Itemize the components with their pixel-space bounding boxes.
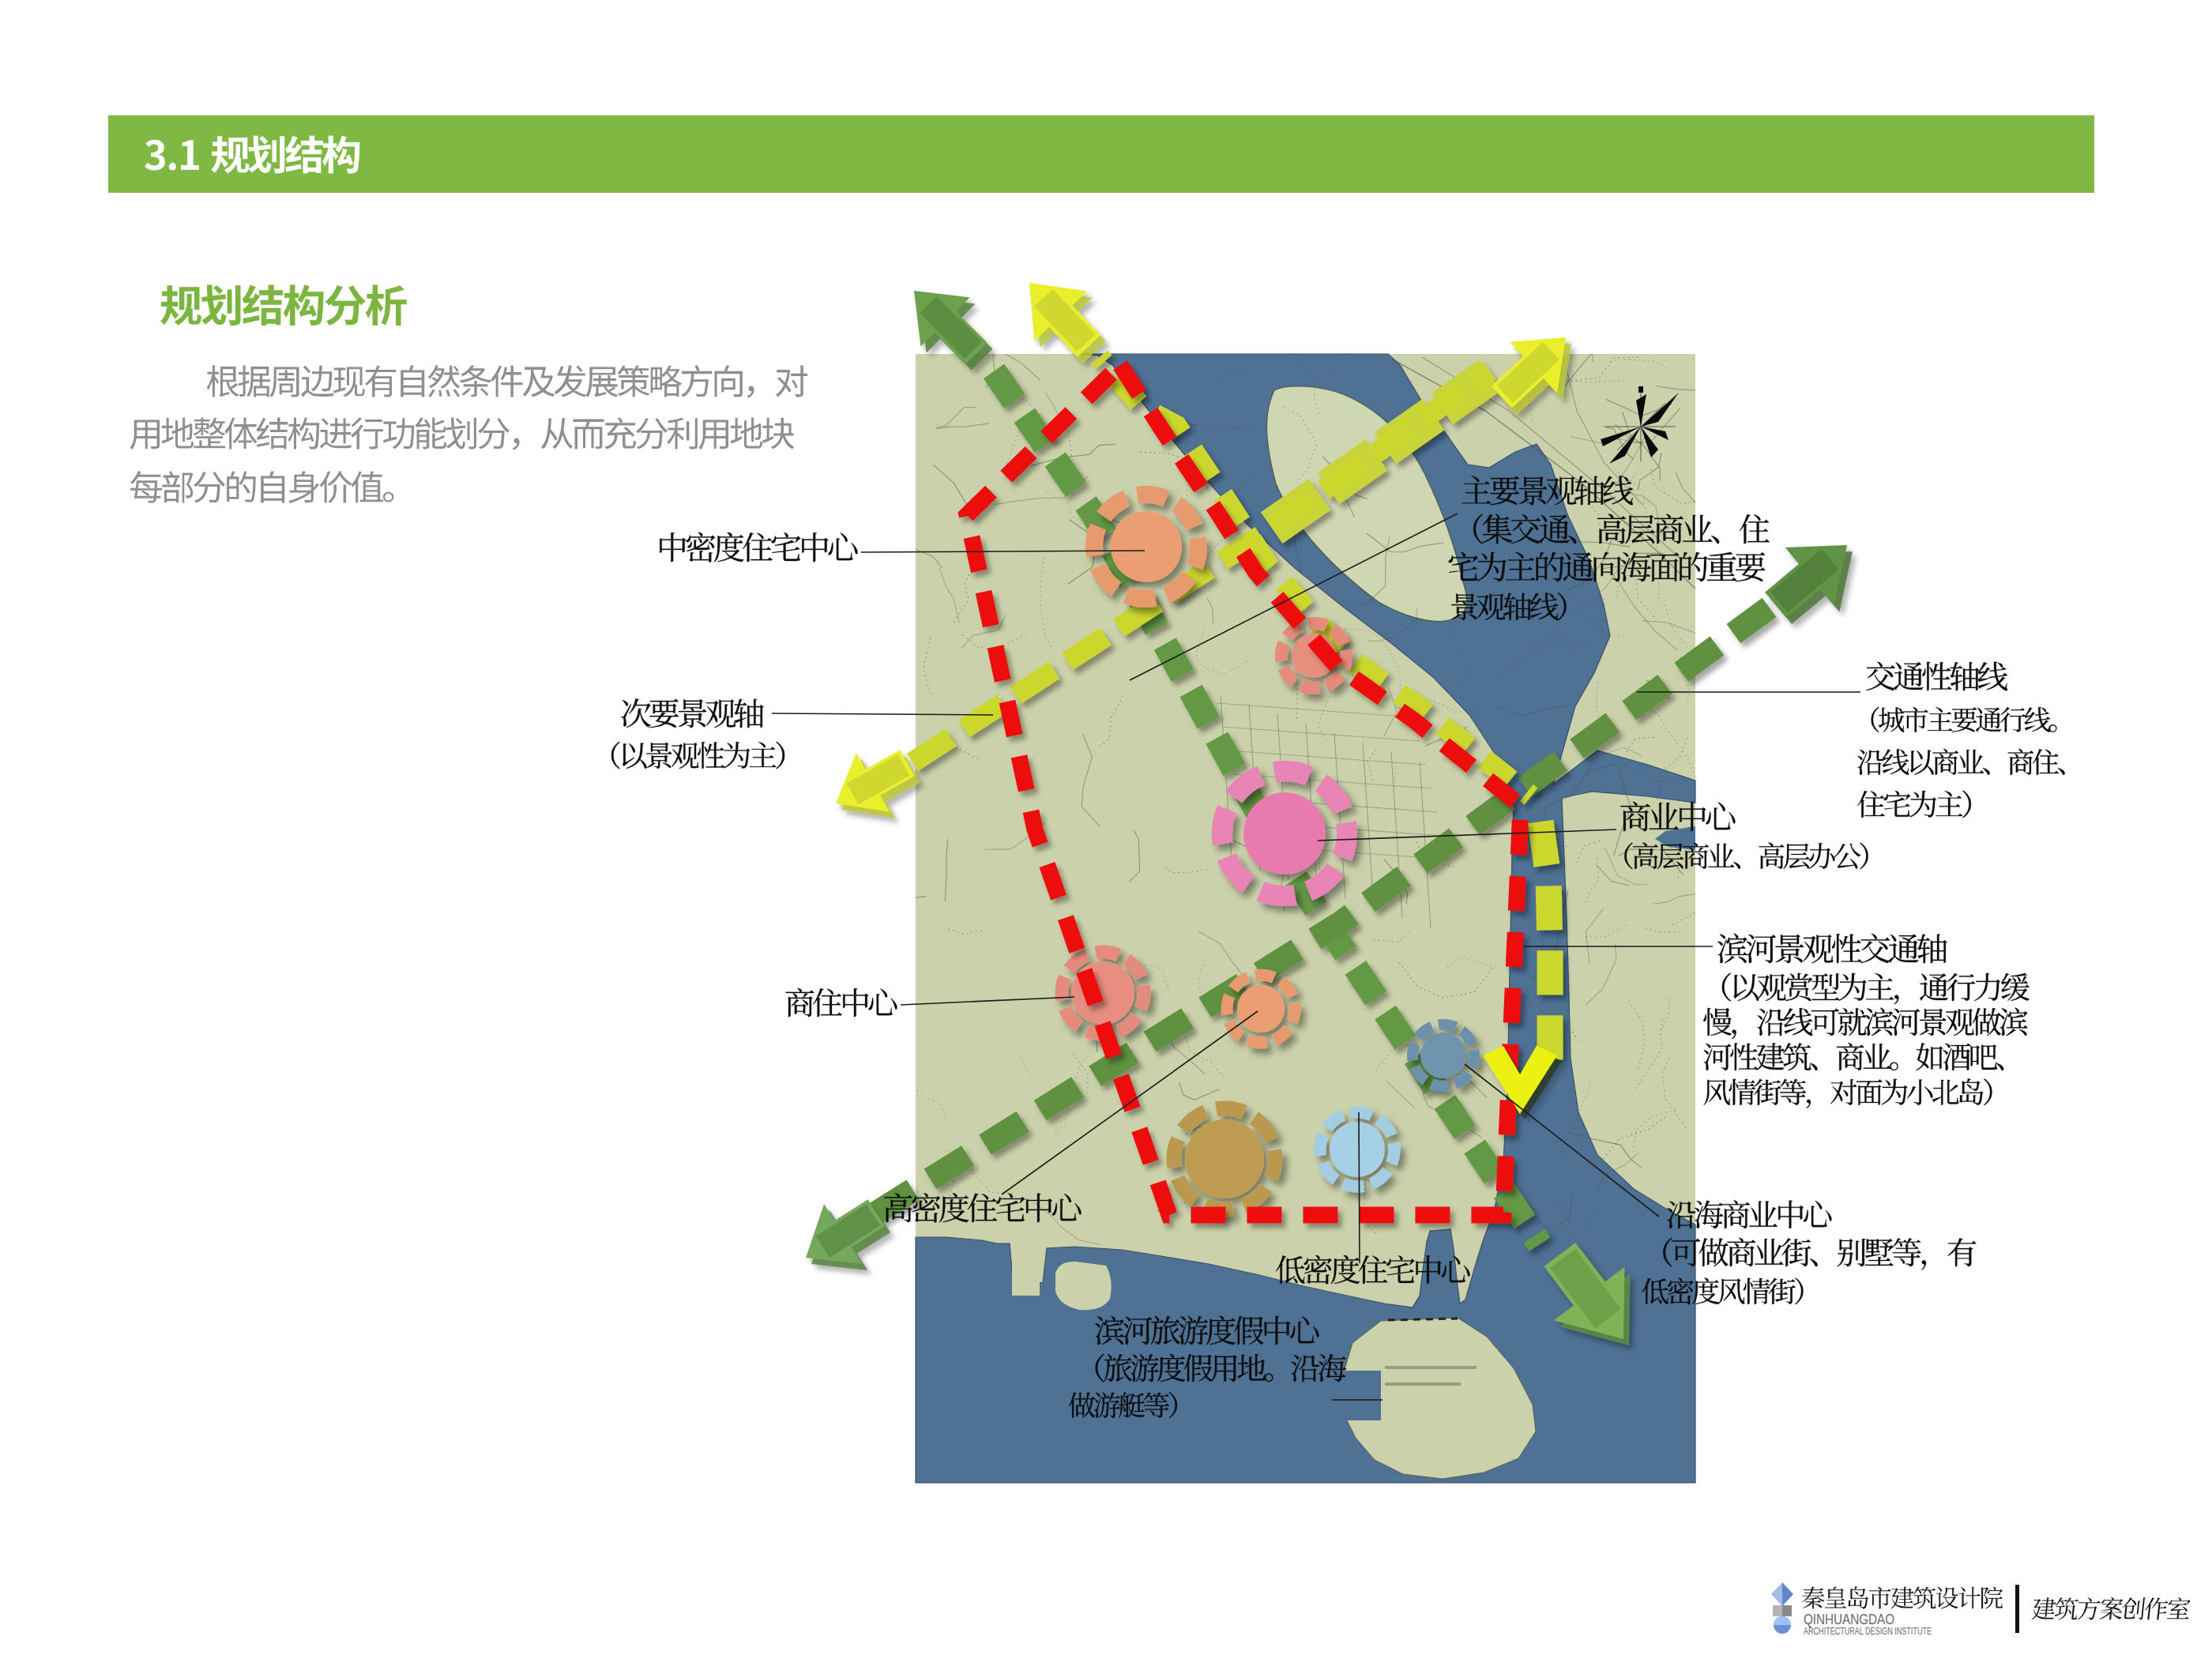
svg-text:QINHUANGDAO: QINHUANGDAO bbox=[1804, 1611, 1894, 1627]
svg-text:ARCHITECTURAL DESIGN INSTITUTE: ARCHITECTURAL DESIGN INSTITUTE bbox=[1804, 1626, 1932, 1637]
